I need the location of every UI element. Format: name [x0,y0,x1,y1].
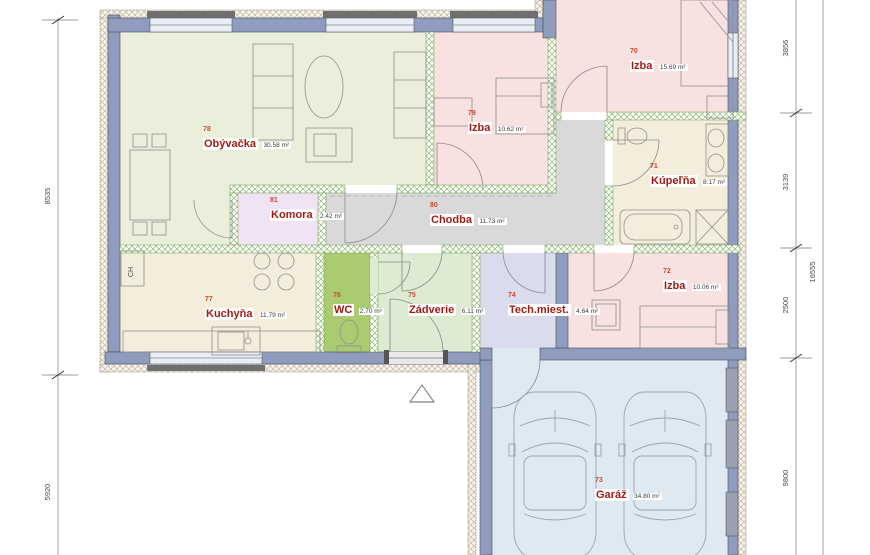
room-label-izba-70: 70 Izba 15.69 m² [630,48,688,74]
lintel [323,11,417,18]
dimension-left [42,16,78,555]
dimension-label: 8535 [43,188,52,205]
room-name: Obývačka [203,138,258,150]
room-area: 6.11 m² [461,308,486,315]
room-number: 81 [270,197,344,205]
room-name: Zádverie [408,304,456,316]
entry-marker-icon [410,385,434,402]
room-label-izba-72: 72 Izba 10.06 m² [663,268,721,294]
room-number: 71 [650,163,727,171]
lintel [147,365,265,371]
dimension-label: 2500 [781,297,790,314]
room-number: 78 [203,126,291,134]
room-number: 70 [630,48,688,56]
room-number: 77 [205,296,287,304]
room-label-komora: 81 Komora 2.42 m² [270,197,344,223]
room-fills [120,0,728,555]
room-area: 30.58 m² [262,142,291,149]
room-label-kuchyna: 77 Kuchyňa 11.79 m² [205,296,287,322]
room-name: Komora [270,209,315,221]
room-number: 79 [468,110,526,118]
room-number: 76 [333,292,384,300]
room-label-obyvacka: 78 Obývačka 30.58 m² [203,126,291,152]
room-area: 2.70 m² [359,308,384,315]
room-name: WC [333,304,354,316]
room-area: 4.64 m² [575,308,600,315]
room-area: 8.17 m² [702,179,727,186]
dimension-label: 5920 [43,484,52,501]
room-area: 10.06 m² [692,284,721,291]
room-label-tech-miest: 74 Tech.miest. 4.64 m² [508,292,600,318]
dimension-label: 9800 [781,470,790,487]
room-name: Izba [630,60,654,72]
room-area: 2.42 m² [319,213,344,220]
room-name: Chodba [430,214,474,226]
room-label-izba-79: 79 Izba 10.62 m² [468,110,526,136]
room-area: 10.62 m² [497,126,526,133]
room-number: 74 [508,292,600,300]
dimension-label: 3856 [781,40,790,57]
room-area: 11.73 m² [478,218,506,225]
room-area: 11.79 m² [259,312,287,319]
lintel [147,11,235,18]
room-name: Garáž [595,489,629,501]
room-number: 80 [430,202,507,210]
garage-door-opening [492,348,540,360]
room-area: 34.80 m² [633,493,662,500]
room-name: Kuchyňa [205,308,254,320]
dimension-total-label: 16555 [808,262,817,283]
room-number: 75 [408,292,485,300]
lintel [450,11,538,18]
room-number: 72 [663,268,721,276]
room-name: Izba [468,122,492,134]
room-label-chodba: 80 Chodba 11.73 m² [430,202,507,228]
room-label-wc: 76 WC 2.70 m² [333,292,384,318]
room-label-zadverie: 75 Zádverie 6.11 m² [408,292,485,318]
room-label-garaz: 73 Garáž 34.80 m² [595,477,662,503]
floorplan-canvas: CH 8535 5920 [0,0,870,555]
fridge-label: CH [128,267,135,277]
room-name: Tech.miest. [508,304,571,316]
floor-plan: CH 8535 5920 [0,0,870,555]
room-area-izba-79 [434,32,548,185]
dimension-label: 3139 [781,174,790,191]
room-label-kupelna: 71 Kúpeľňa 8.17 m² [650,163,727,189]
room-name: Izba [663,280,687,292]
wc-door-opening [370,258,378,294]
room-name: Kúpeľňa [650,175,698,187]
room-area: 15.69 m² [659,64,688,71]
room-number: 73 [595,477,662,485]
garage-wall-blocks [726,368,738,536]
